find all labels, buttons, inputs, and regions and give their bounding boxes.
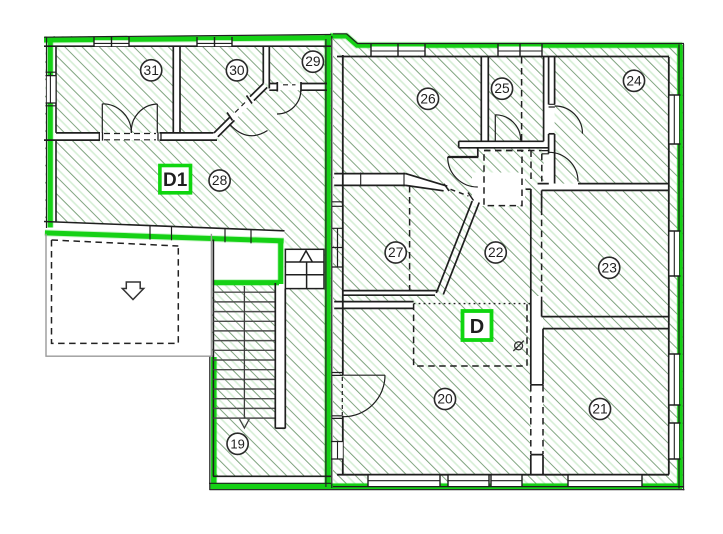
svg-text:28: 28 [212,173,228,188]
svg-text:D: D [470,316,484,338]
svg-text:24: 24 [626,73,642,88]
svg-text:19: 19 [230,436,244,451]
svg-text:21: 21 [592,402,607,417]
svg-text:26: 26 [420,91,436,106]
svg-text:31: 31 [144,63,159,78]
svg-text:22: 22 [488,245,503,260]
svg-text:27: 27 [388,245,403,260]
svg-text:25: 25 [494,81,510,96]
svg-text:29: 29 [305,54,321,69]
svg-text:20: 20 [437,392,453,407]
svg-text:30: 30 [229,63,245,78]
svg-text:D1: D1 [163,170,188,191]
svg-text:23: 23 [602,260,618,275]
